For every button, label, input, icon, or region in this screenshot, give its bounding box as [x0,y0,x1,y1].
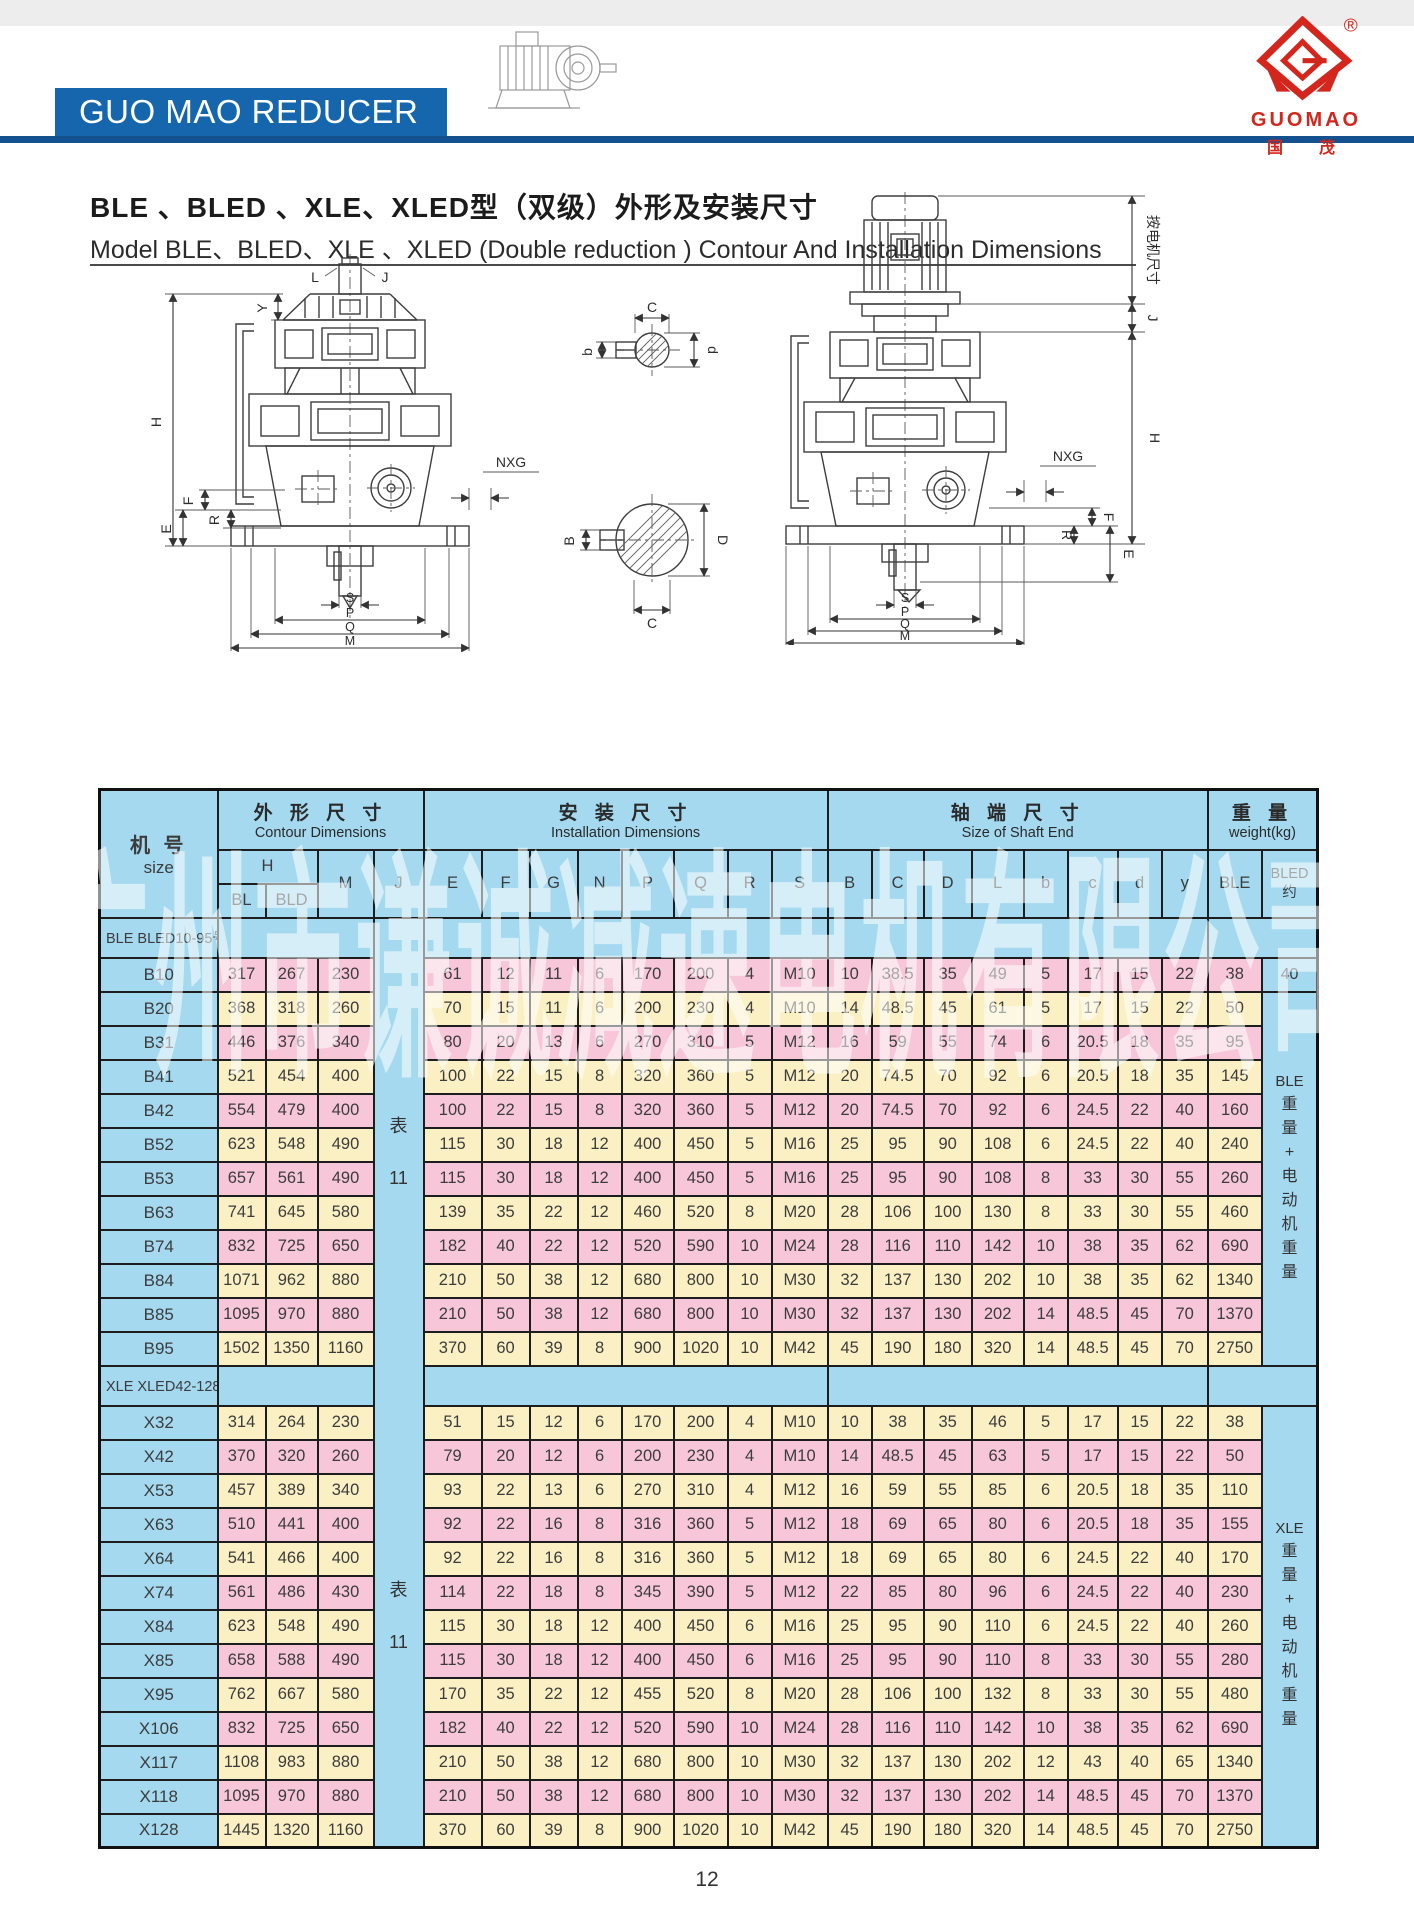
cell-value: 4 [728,1406,772,1440]
cell-value: 16 [828,1474,872,1508]
cell-value: 389 [266,1474,318,1508]
cell-value: 340 [318,1474,374,1508]
cell-value: 520 [674,1678,728,1712]
cell-value: 15 [1118,958,1162,992]
cell-model-size: B52 [100,1128,218,1162]
cell-value: 202 [972,1298,1024,1332]
cell-value: 80 [424,1026,482,1060]
cell-value: 80 [924,1576,972,1610]
cell-value: 479 [266,1094,318,1128]
cell-value: 200 [674,958,728,992]
dim-label-q: Q [345,620,355,634]
cell-value: 280 [1208,1644,1262,1678]
cell-value: 130 [972,1196,1024,1230]
cell-value: 10 [728,1814,772,1848]
cell-value: 38 [530,1780,578,1814]
cell-value: 490 [318,1610,374,1644]
cell-value: 40 [1118,1746,1162,1780]
cell-value: 17 [1068,1440,1118,1474]
section-header-row: XLE XLED42-128号 [100,1366,1318,1406]
cell-value: 10 [728,1332,772,1366]
cell-value: 90 [924,1128,972,1162]
brand-banner-text: GUO MAO REDUCER [79,93,418,131]
cell-value: 24.5 [1068,1542,1118,1576]
cell-model-size: X42 [100,1440,218,1474]
cell-value: 38 [1068,1230,1118,1264]
cell-value: 6 [1024,1474,1068,1508]
cell-value: 520 [622,1712,674,1746]
cell-value: 30 [482,1644,530,1678]
cell-value: 18 [1118,1474,1162,1508]
registered-mark: ® [1344,16,1358,36]
cell-value: 202 [972,1780,1024,1814]
cell-value: 16 [530,1542,578,1576]
cell-value: 45 [1118,1332,1162,1366]
weight-note: XLE重量+电动机重量 [1262,1406,1318,1848]
cell-value: 20.5 [1068,1508,1118,1542]
cell-model-size: B41 [100,1060,218,1094]
cell-value: 40 [1162,1542,1208,1576]
cell-value: 38 [1208,1406,1262,1440]
cell-value: 316 [622,1508,674,1542]
cell-value: 12 [578,1780,622,1814]
cell-value: 110 [972,1610,1024,1644]
cell-value: 6 [578,1026,622,1060]
cell-value: 5 [728,1576,772,1610]
cell-value: 360 [674,1508,728,1542]
cell-value: 170 [622,1406,674,1440]
cell-value: 900 [622,1332,674,1366]
cell-value: M16 [772,1128,828,1162]
cell-value: 12 [578,1712,622,1746]
cell-value: 110 [924,1230,972,1264]
dim-label-r: R [206,515,222,525]
cell-value: 182 [424,1230,482,1264]
cell-value: 45 [1118,1298,1162,1332]
cell-value: 110 [972,1644,1024,1678]
col-header-d: D [924,850,972,918]
table-row: X74561486430114221883453905M122285809662… [100,1576,1318,1610]
page-number: 12 [0,1868,1414,1892]
cell-value: 190 [872,1332,924,1366]
cell-value: 340 [318,1026,374,1060]
cell-value: 92 [972,1094,1024,1128]
cell-value: 30 [482,1128,530,1162]
cell-value: 15 [530,1060,578,1094]
cell-value: 541 [218,1542,266,1576]
cell-value: 48.5 [872,992,924,1026]
cell-value: 61 [424,958,482,992]
cell-value: 5 [728,1128,772,1162]
dim-label-j: J [382,269,389,285]
logo-name-cn: 国 茂 [1248,134,1364,158]
weight-note-text: XLE重量+电动机重量 [1263,1407,1317,1847]
cell-value: 6 [578,1440,622,1474]
cell-value: 12 [578,1298,622,1332]
cell-value: 22 [1162,1440,1208,1474]
cell-value: 115 [424,1128,482,1162]
brand-banner: GUO MAO REDUCER [55,88,447,136]
table-row: X3231426423051151261702004M1010383546517… [100,1406,1318,1440]
cell-model-size: B42 [100,1094,218,1128]
table-row: B42554479400100221583203605M122074.57092… [100,1094,1318,1128]
cell-value: 15 [1118,1440,1162,1474]
cell-value: 1320 [266,1814,318,1848]
cell-value: 970 [266,1298,318,1332]
cell-model-size: B85 [100,1298,218,1332]
dim-label-m-right: M [900,629,910,643]
cell-value: M30 [772,1780,828,1814]
contour-drawing-bled-xled: 按电机尺寸 J H NXG F R E S P Q M [700,190,1200,645]
cell-value: 510 [218,1508,266,1542]
cell-value: 1020 [674,1332,728,1366]
cell-value: 22 [530,1678,578,1712]
cell-value: 400 [318,1060,374,1094]
cell-model-size: B31 [100,1026,218,1060]
section-dim-b-small: b [579,348,595,356]
cell-value: 450 [674,1644,728,1678]
cell-value: 55 [924,1026,972,1060]
cell-value: 900 [622,1814,674,1848]
cell-model-size: X74 [100,1576,218,1610]
cell-value: 264 [266,1406,318,1440]
cell-value: 60 [482,1332,530,1366]
table-note: 表11 [389,1576,408,1653]
cell-value: 270 [622,1026,674,1060]
cell-value: 455 [622,1678,674,1712]
cell-value: 450 [674,1128,728,1162]
cell-value: 18 [530,1644,578,1678]
cell-value: 38 [530,1264,578,1298]
cell-model-size: X32 [100,1406,218,1440]
cell-value: 63 [972,1440,1024,1474]
cell-value: 561 [266,1162,318,1196]
cell-value: 70 [1162,1332,1208,1366]
cell-value: 360 [674,1542,728,1576]
cell-value: 70 [424,992,482,1026]
cell-value: M16 [772,1162,828,1196]
cell-value: 60 [482,1814,530,1848]
cell-value: 18 [530,1128,578,1162]
cell-value: 70 [1162,1814,1208,1848]
cell-value: 22 [1118,1128,1162,1162]
cell-value: 267 [266,958,318,992]
cell-model-size: X95 [100,1678,218,1712]
cell-value: 180 [924,1332,972,1366]
cell-value: 15 [1118,992,1162,1026]
cell-value: 80 [972,1508,1024,1542]
cell-value: 12 [1024,1746,1068,1780]
cell-value: 39 [530,1332,578,1366]
cell-value: 260 [318,992,374,1026]
table-row: B526235484901153018124004505M16259590108… [100,1128,1318,1162]
cell-value: 160 [1208,1094,1262,1128]
cell-value: 8 [578,1508,622,1542]
cell-value: 20 [828,1060,872,1094]
cell-value: 116 [872,1712,924,1746]
cell-value: 1071 [218,1264,266,1298]
cell-value: 10 [728,1264,772,1298]
weight-note-head: XLE [1275,1520,1303,1537]
cell-value: 74.5 [872,1094,924,1128]
cell-value: 20.5 [1068,1026,1118,1060]
table-row: B85109597088021050381268080010M303213713… [100,1298,1318,1332]
col-header-j: J [374,850,424,918]
cell-value: 12 [578,1230,622,1264]
cell-value: 18 [1118,1060,1162,1094]
weight-note: BLE重量+电动机重量 [1262,992,1318,1366]
cell-value: 33 [1068,1644,1118,1678]
cell-value: 376 [266,1026,318,1060]
cell-model-size: B63 [100,1196,218,1230]
table-row: X5345738934093221362703104M1216595585620… [100,1474,1318,1508]
cell-value: 12 [578,1610,622,1644]
cell-value: 35 [1118,1230,1162,1264]
cell-value: M12 [772,1474,828,1508]
cell-value: 8 [578,1814,622,1848]
cell-value: 1160 [318,1332,374,1366]
cell-value: 45 [1118,1780,1162,1814]
cell-value: 10 [1024,1264,1068,1298]
cell-value: M10 [772,1406,828,1440]
cell-value: 454 [266,1060,318,1094]
cell-value: 32 [828,1780,872,1814]
cell-value: 115 [424,1162,482,1196]
cell-value: 1340 [1208,1746,1262,1780]
cell-value: 48.5 [1068,1298,1118,1332]
cell-value: 139 [424,1196,482,1230]
cell-value: 800 [674,1780,728,1814]
cell-value: 690 [1208,1230,1262,1264]
cell-value: 441 [266,1508,318,1542]
col-header-n: N [578,850,622,918]
cell-value: 38 [1068,1264,1118,1298]
cell-value: 17 [1068,1406,1118,1440]
cell-model-size: X63 [100,1508,218,1542]
cell-value: 8 [578,1576,622,1610]
cell-value: 50 [1208,1440,1262,1474]
cell-value: 400 [318,1508,374,1542]
cell-value: 190 [872,1814,924,1848]
cell-value: 100 [424,1060,482,1094]
cell-value: 22 [1118,1542,1162,1576]
cell-model-size: B20 [100,992,218,1026]
cell-value: 180 [924,1814,972,1848]
cell-value: 450 [674,1610,728,1644]
cell-value: 1340 [1208,1264,1262,1298]
cell-value: 115 [424,1610,482,1644]
cell-value: 108 [972,1128,1024,1162]
cell-value: 970 [266,1780,318,1814]
cell-value: 400 [622,1644,674,1678]
cell-value: M24 [772,1712,828,1746]
cell-value: 645 [266,1196,318,1230]
cell-value: 35 [1162,1026,1208,1060]
cell-value: 130 [924,1298,972,1332]
dim-label-f-right: F [1101,513,1117,522]
table-row: B1031726723061121161702004M101038.535495… [100,958,1318,992]
cell-value: 5 [1024,992,1068,1026]
cell-value: 74.5 [872,1060,924,1094]
cell-value: 15 [482,1406,530,1440]
cell-value: 155 [1208,1508,1262,1542]
cell-value: 14 [1024,1780,1068,1814]
cell-value: 390 [674,1576,728,1610]
cell-value: 45 [924,1440,972,1474]
table-row: X957626675801703522124555208M20281061001… [100,1678,1318,1712]
cell-value: 170 [1208,1542,1262,1576]
cell-value: 446 [218,1026,266,1060]
cell-value: 10 [828,958,872,992]
cell-value: 38 [1208,958,1262,992]
cell-value: 310 [674,1474,728,1508]
cell-value: 12 [578,1644,622,1678]
cell-value: 210 [424,1746,482,1780]
cell-value: M42 [772,1332,828,1366]
cell-value: 182 [424,1712,482,1746]
cell-value: 92 [972,1060,1024,1094]
col-header-c-low: c [1068,850,1118,918]
scan-top-margin [0,0,1414,26]
cell-value: 38 [1068,1712,1118,1746]
cell-value: 22 [530,1196,578,1230]
cell-value: 10 [1024,1712,1068,1746]
cell-value: 983 [266,1746,318,1780]
cell-value: 25 [828,1128,872,1162]
col-header-l: L [972,850,1024,918]
cell-value: 170 [622,958,674,992]
cell-value: 59 [872,1026,924,1060]
cell-value: 24.5 [1068,1128,1118,1162]
cell-value: 548 [266,1610,318,1644]
cell-value: 590 [674,1712,728,1746]
cell-value: 22 [482,1576,530,1610]
cell-value: 11 [530,992,578,1026]
cell-value: 24.5 [1068,1094,1118,1128]
cell-value: 40 [1162,1094,1208,1128]
cell-value: 32 [828,1264,872,1298]
cell-value: 320 [972,1814,1024,1848]
cell-value: 800 [674,1746,728,1780]
section-dim-b-large: B [561,536,577,545]
cell-value: 18 [530,1576,578,1610]
cell-value: M12 [772,1026,828,1060]
table-row: X856585884901153018124004506M16259590110… [100,1644,1318,1678]
cell-value: 35 [1162,1060,1208,1094]
cell-model-size: X117 [100,1746,218,1780]
cell-value: 93 [424,1474,482,1508]
cell-value: 2750 [1208,1332,1262,1366]
cell-value: 95 [872,1162,924,1196]
cell-value: 800 [674,1264,728,1298]
table-row: B536575614901153018124004505M16259590108… [100,1162,1318,1196]
cell-value: 880 [318,1264,374,1298]
cell-value: 260 [1208,1610,1262,1644]
cell-value: 400 [622,1610,674,1644]
table-row: X10683272565018240221252059010M242811611… [100,1712,1318,1746]
cell-value: 70 [924,1094,972,1128]
cell-value: 38 [530,1746,578,1780]
table-row: X846235484901153018124004506M16259590110… [100,1610,1318,1644]
cell-value: 2750 [1208,1814,1262,1848]
cell-value: 95 [1208,1026,1262,1060]
cell-value: 145 [1208,1060,1262,1094]
cell-value: 28 [828,1712,872,1746]
cell-value: 480 [1208,1678,1262,1712]
cell-value: 260 [318,1440,374,1474]
cell-value: 18 [530,1162,578,1196]
cell-value: 6 [1024,1508,1068,1542]
cell-value: 1445 [218,1814,266,1848]
cell-value: 8 [728,1196,772,1230]
dim-label-y: Y [254,303,270,313]
cell-value: 490 [318,1128,374,1162]
cell-value: M24 [772,1230,828,1264]
cell-value: 65 [924,1508,972,1542]
cell-value: 230 [674,1440,728,1474]
cell-value: M42 [772,1814,828,1848]
cell-value: M10 [772,958,828,992]
cell-value: 1095 [218,1780,266,1814]
cell-value: 210 [424,1780,482,1814]
col-header-g: G [530,850,578,918]
cell-value: 1160 [318,1814,374,1848]
cell-value: 28 [828,1230,872,1264]
cell-value: 108 [972,1162,1024,1196]
cell-value: M12 [772,1060,828,1094]
dimensions-table-wrap: 机 号 size 外 形 尺 寸 Contour Dimensions 安 装 … [98,788,1319,1849]
cell-value: 8 [578,1542,622,1576]
cell-value: 210 [424,1298,482,1332]
cell-value: 12 [578,1264,622,1298]
guomao-logo-icon: ® [1248,16,1364,102]
cell-value: 32 [828,1746,872,1780]
cell-value: 8 [1024,1196,1068,1230]
cell-value: 43 [1068,1746,1118,1780]
cell-value: 130 [924,1746,972,1780]
cell-value: 310 [674,1026,728,1060]
cell-value: 22 [828,1576,872,1610]
cell-value: 316 [622,1542,674,1576]
cell-value: 12 [578,1678,622,1712]
cell-value: 90 [924,1610,972,1644]
cell-value: 210 [424,1264,482,1298]
cell-value: 55 [924,1474,972,1508]
cell-value: 18 [828,1542,872,1576]
cell-value: 65 [924,1542,972,1576]
dim-label-h-right: H [1147,433,1163,443]
cell-value: 40 [1162,1576,1208,1610]
cell-value: 8 [728,1678,772,1712]
cell-value: 110 [1208,1474,1262,1508]
cell-value: 110 [924,1712,972,1746]
cell-value: 490 [318,1644,374,1678]
cell-value: 24.5 [1068,1610,1118,1644]
cell-value: 22 [1118,1094,1162,1128]
cell-value: 667 [266,1678,318,1712]
cell-value: 49 [972,958,1024,992]
table-row: X12814451320116037060398900102010M424519… [100,1814,1318,1848]
cell-value: 22 [1162,958,1208,992]
cell-value: 8 [1024,1644,1068,1678]
dim-label-m: M [345,634,355,648]
cell-value: 14 [828,1440,872,1474]
cell-value: 12 [578,1196,622,1230]
cell-value: 92 [424,1542,482,1576]
cell-value: 725 [266,1712,318,1746]
cell-value: 50 [1208,992,1262,1026]
cell-value: 6 [728,1644,772,1678]
